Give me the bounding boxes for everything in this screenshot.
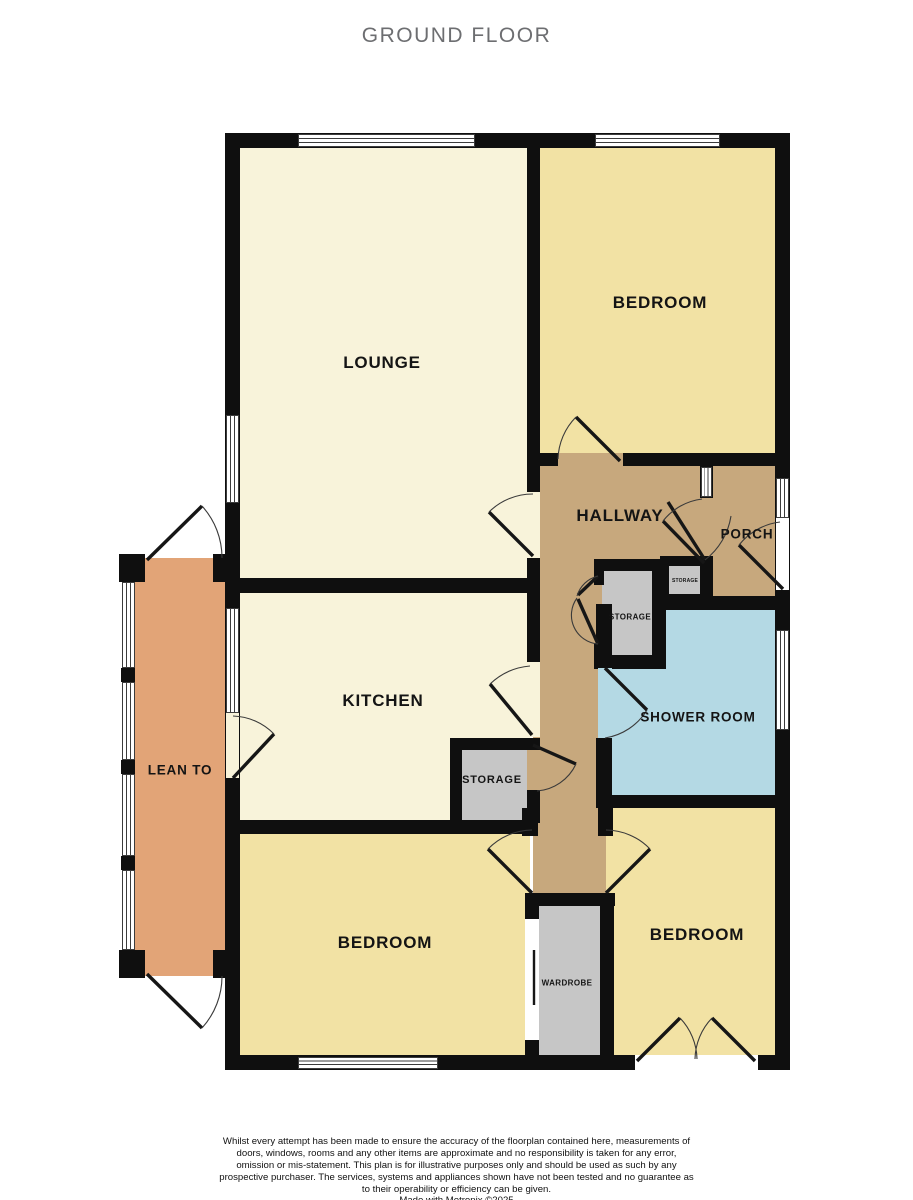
- wall: [525, 903, 539, 919]
- wall: [522, 808, 538, 836]
- wall: [225, 133, 240, 593]
- label-shower-room: SHOWER ROOM: [640, 710, 755, 725]
- footer: Whilst every attempt has been made to en…: [218, 1136, 696, 1200]
- door-opening: [558, 453, 623, 466]
- door-opening: [527, 492, 540, 558]
- wall: [598, 808, 613, 836]
- label-storage-kitchen: STORAGE: [462, 774, 522, 786]
- wall: [213, 950, 240, 978]
- window: [122, 582, 135, 668]
- wall: [527, 466, 540, 492]
- window: [298, 1057, 438, 1069]
- wall: [652, 559, 666, 659]
- wall: [121, 760, 135, 774]
- door-opening: [527, 750, 540, 790]
- window: [595, 134, 720, 147]
- credit-text: Made with Metropix ©2025: [399, 1195, 513, 1200]
- door-opening: [226, 713, 239, 778]
- label-lean-to: LEAN TO: [148, 763, 213, 778]
- window: [122, 774, 135, 856]
- wall: [121, 856, 135, 870]
- wall: [594, 559, 604, 585]
- door-opening: [598, 668, 612, 738]
- page-title: GROUND FLOOR: [0, 24, 913, 48]
- window: [122, 870, 135, 950]
- label-porch: PORCH: [721, 527, 774, 542]
- wall: [527, 133, 540, 466]
- wall: [119, 950, 145, 978]
- label-lounge: LOUNGE: [343, 353, 421, 373]
- label-storage-small: STORAGE: [672, 578, 698, 584]
- label-storage-hall: STORAGE: [609, 613, 651, 622]
- wall: [656, 596, 790, 610]
- window: [701, 467, 712, 497]
- wall: [600, 893, 614, 1058]
- wall: [213, 554, 240, 582]
- wall: [623, 453, 777, 466]
- wall: [525, 1040, 539, 1057]
- label-hallway: HALLWAY: [576, 506, 663, 526]
- wall: [225, 578, 540, 593]
- door-opening: [525, 919, 539, 1040]
- label-bedroom-bottom-right: BEDROOM: [650, 925, 744, 945]
- door-opening: [776, 518, 789, 590]
- wall: [450, 738, 462, 826]
- label-kitchen: KITCHEN: [342, 691, 423, 711]
- window: [298, 134, 475, 147]
- wall: [527, 594, 540, 662]
- wall: [450, 738, 540, 750]
- label-bedroom-bottom-left: BEDROOM: [338, 933, 432, 953]
- label-bedroom-top-right: BEDROOM: [613, 293, 707, 313]
- label-wardrobe: WARDROBE: [542, 979, 593, 988]
- wall: [119, 554, 145, 582]
- wall: [533, 453, 560, 466]
- wall: [121, 668, 135, 682]
- wall: [225, 820, 527, 834]
- window: [226, 415, 239, 503]
- window: [776, 478, 789, 518]
- disclaimer-text: Whilst every attempt has been made to en…: [219, 1136, 693, 1195]
- floorplan-canvas: GROUND FLOOR: [0, 0, 913, 1200]
- door-opening: [527, 662, 540, 737]
- window: [226, 608, 239, 713]
- window: [776, 630, 789, 730]
- door-opening: [635, 1055, 758, 1070]
- wall: [596, 795, 790, 808]
- window: [122, 682, 135, 760]
